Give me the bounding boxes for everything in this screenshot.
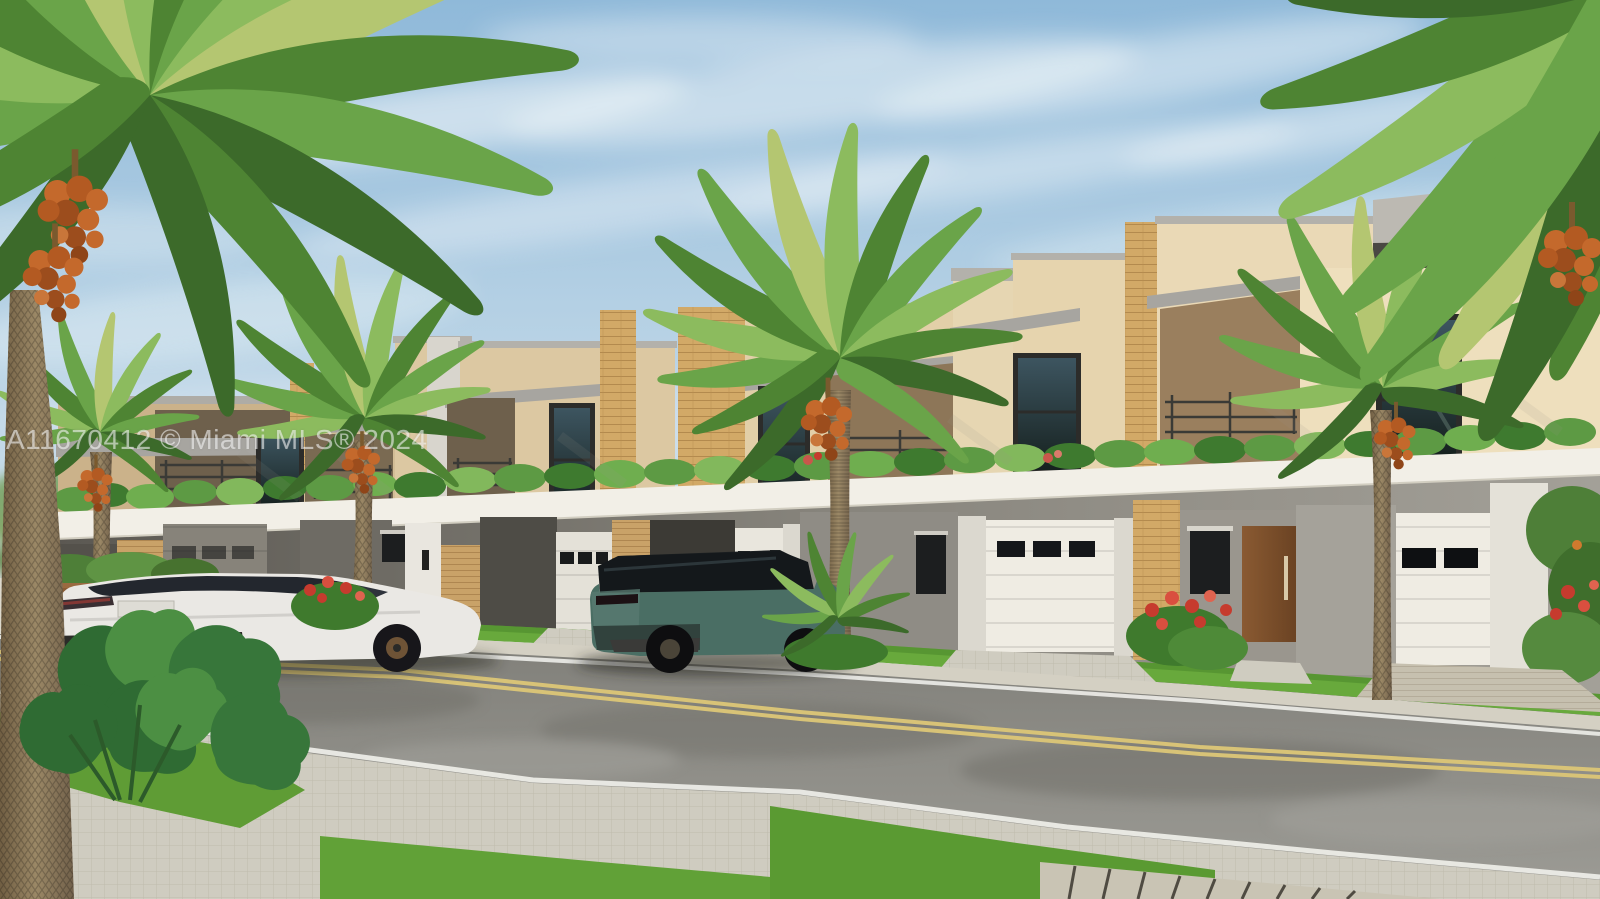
garage-door-4 [986, 520, 1114, 652]
garage-door-5 [1396, 513, 1490, 665]
window-ground-unit5 [914, 531, 948, 594]
suv-glass [598, 551, 814, 593]
rendered-scene [0, 0, 1600, 899]
entry-walk-2 [1230, 660, 1312, 684]
listing-photo: A11670412 © Miami MLS® 2024 [0, 0, 1600, 899]
entry-door-unit6 [1242, 526, 1296, 642]
window-ground-unit6 [1187, 526, 1233, 594]
